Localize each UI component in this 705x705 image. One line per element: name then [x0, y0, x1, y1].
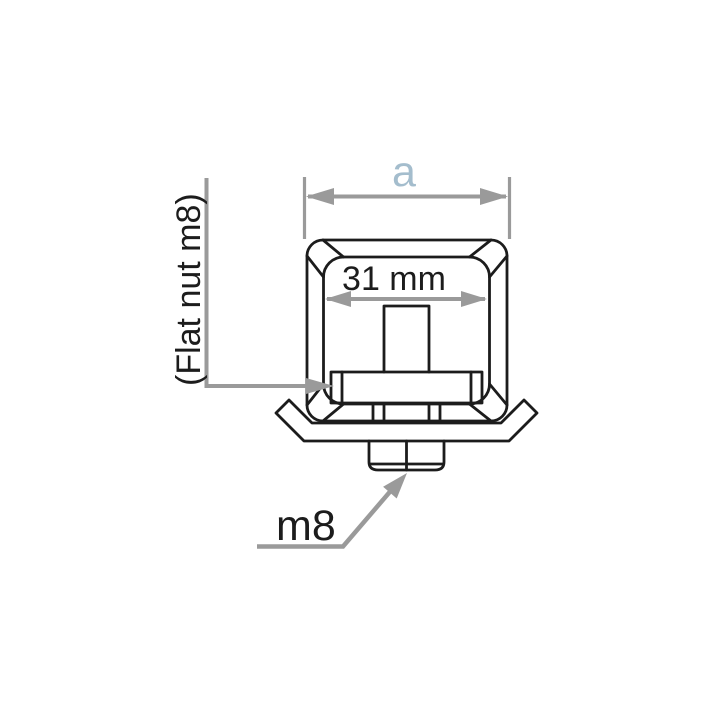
bolt-shaft	[384, 306, 429, 372]
flat-nut-label: (Flat nut m8)	[170, 193, 208, 386]
drawing-canvas: a 31 mm (Flat nut m8) m8	[0, 0, 705, 705]
arrowhead-right-icon	[480, 188, 508, 205]
bolt-head	[369, 441, 444, 470]
flat-nut-callout: (Flat nut m8)	[170, 178, 334, 394]
dimension-a: a	[305, 148, 510, 239]
flat-nut	[331, 372, 482, 403]
dimension-a-label: a	[392, 148, 416, 196]
arrowhead-right-icon	[461, 291, 487, 307]
bolt-callout: m8	[257, 473, 407, 550]
bolt-label: m8	[276, 502, 336, 550]
dimension-31mm: 31 mm	[325, 260, 487, 307]
bottom-wall-slot-lines	[373, 404, 440, 421]
flat-nut-leader-line	[207, 178, 311, 386]
technical-drawing: a 31 mm (Flat nut m8) m8	[0, 0, 705, 705]
arrowhead-left-icon	[306, 188, 334, 205]
dimension-31mm-label: 31 mm	[342, 260, 446, 298]
